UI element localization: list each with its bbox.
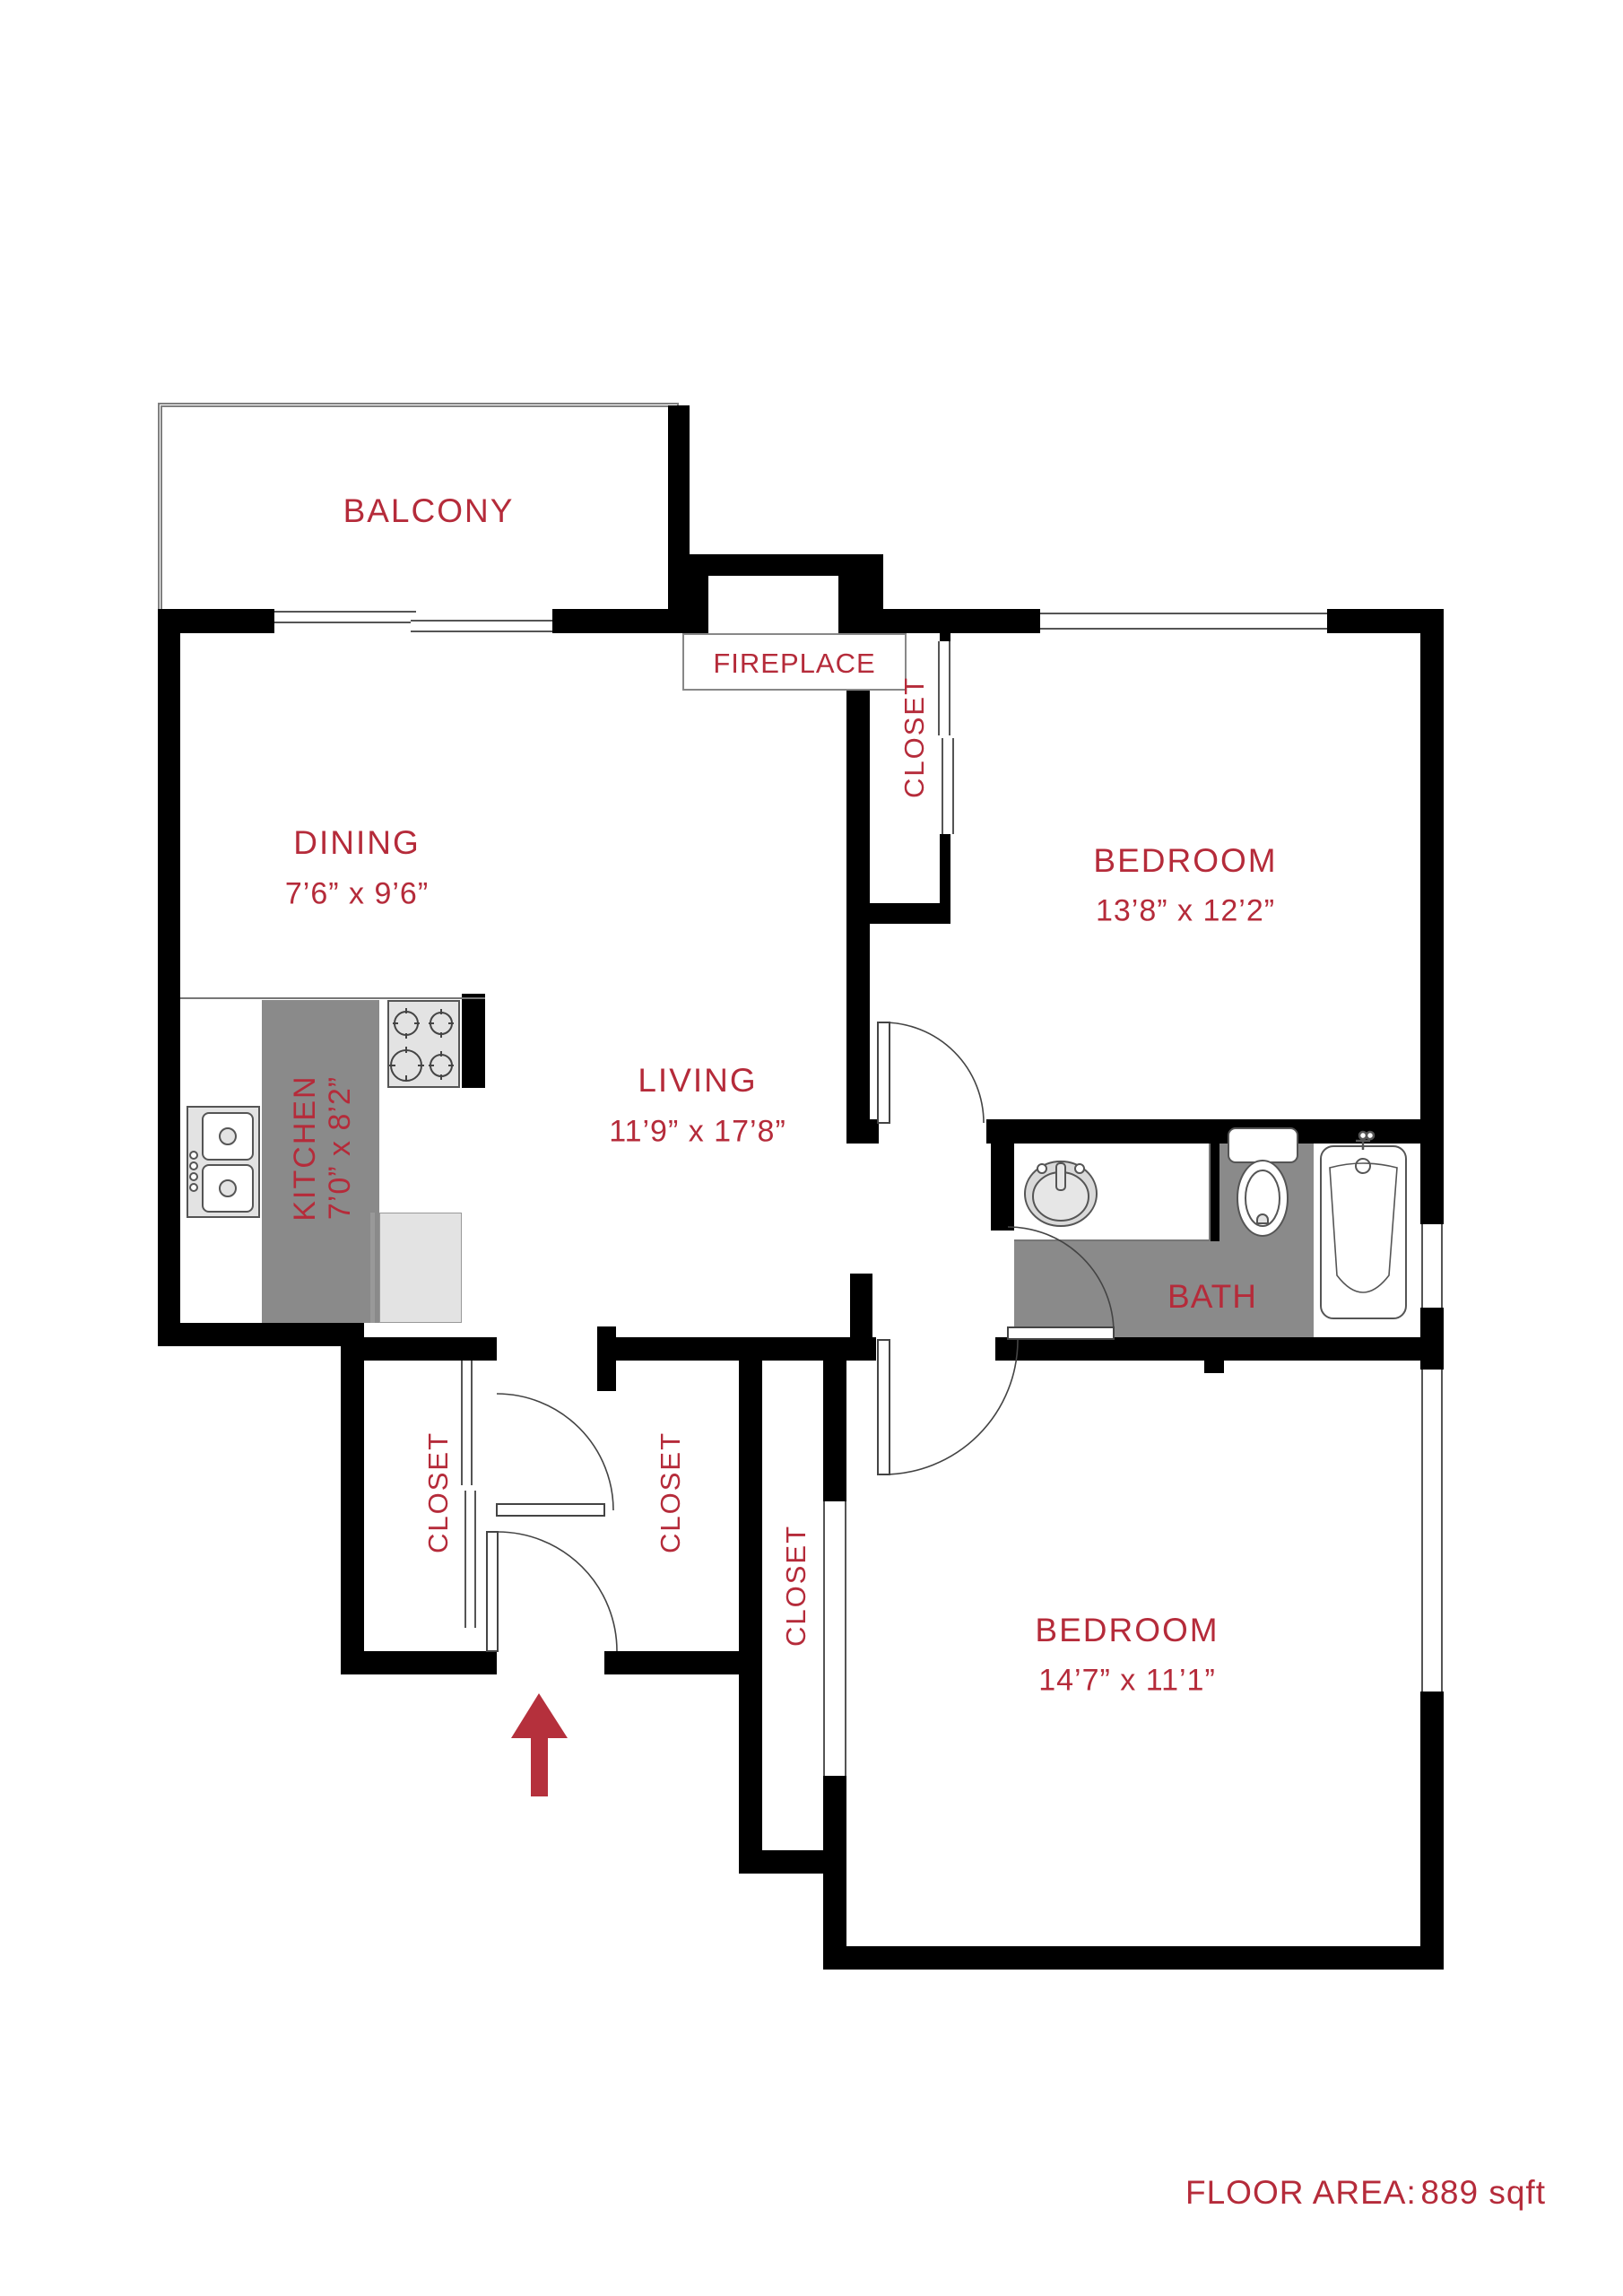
- bath-label: BATH: [1167, 1278, 1257, 1316]
- floor-area-row: FLOOR AREA: 889 sqft: [1185, 2174, 1546, 2212]
- door-bedroom2: [878, 1340, 1018, 1474]
- closet-top-label: CLOSET: [898, 676, 931, 798]
- stove-burners: [389, 1008, 454, 1082]
- floor-area-label: FLOOR AREA:: [1185, 2174, 1417, 2212]
- floor-area-value: 889 sqft: [1420, 2174, 1546, 2212]
- door-bath: [1008, 1227, 1114, 1339]
- fireplace-label: FIREPLACE: [713, 648, 875, 680]
- door-bedroom1: [878, 1022, 984, 1123]
- living-dims: 11’9” x 17’8”: [609, 1115, 786, 1150]
- floor-plan: BALCONY FIREPLACE DINING 7’6” x 9’6” LIV…: [0, 0, 1623, 2296]
- living-label: LIVING: [638, 1062, 757, 1100]
- closet-middle-label: CLOSET: [655, 1431, 687, 1553]
- plan-linework: [0, 0, 1623, 2296]
- kitchen-label: KITCHEN: [288, 1074, 323, 1221]
- closet-bedroom2-label: CLOSET: [780, 1525, 812, 1647]
- toilet: [1228, 1128, 1298, 1236]
- bedroom1-dims: 13’8” x 12’2”: [1096, 894, 1275, 929]
- bathtub: [1321, 1132, 1406, 1318]
- door-hall-vestibule: [497, 1394, 613, 1516]
- dining-label: DINING: [293, 824, 421, 862]
- bedroom2-label: BEDROOM: [1035, 1612, 1219, 1649]
- entry-arrow: [511, 1693, 568, 1796]
- dining-dims: 7’6” x 9’6”: [285, 877, 429, 912]
- kitchen-sink: [190, 1113, 253, 1212]
- closet-left-label: CLOSET: [422, 1431, 455, 1553]
- kitchen-label-block: KITCHEN 7’0” x 8’2”: [288, 1074, 358, 1221]
- bedroom1-label: BEDROOM: [1093, 842, 1277, 880]
- door-entry: [487, 1532, 617, 1651]
- vanity-sink: [1025, 1161, 1097, 1226]
- balcony-label: BALCONY: [343, 492, 515, 530]
- bedroom2-dims: 14’7” x 11’1”: [1038, 1664, 1216, 1699]
- kitchen-dims: 7’0” x 8’2”: [323, 1074, 358, 1221]
